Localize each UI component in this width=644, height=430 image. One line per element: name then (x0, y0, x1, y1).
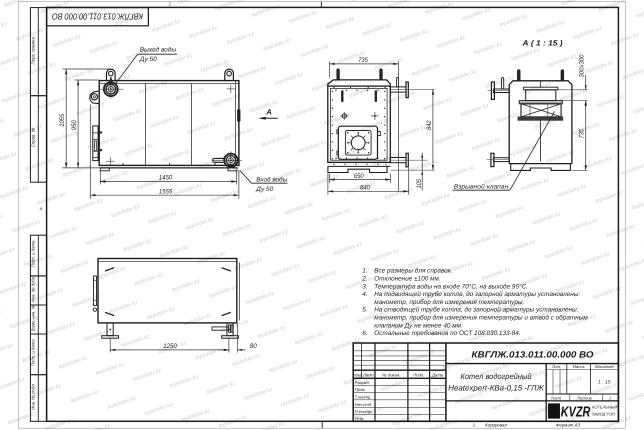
svg-text:Ду 50: Ду 50 (139, 56, 157, 63)
svg-text:Справ. №: Справ. № (31, 127, 36, 147)
svg-text:2: 2 (169, 2, 172, 7)
svg-text:А: А (265, 107, 271, 116)
svg-text:5.: 5. (362, 307, 367, 314)
svg-text:6.: 6. (362, 330, 367, 337)
svg-text:840: 840 (360, 185, 370, 192)
svg-text:ЗАВОД РЭП: ЗАВОД РЭП (592, 411, 615, 416)
svg-text:Температура воды на входе 70°С: Температура воды на входе 70°С, на выход… (374, 283, 528, 290)
svg-text:Взам. инв. №: Взам. инв. № (31, 304, 36, 331)
svg-text:1.: 1. (362, 268, 367, 275)
svg-text:Лит.: Лит. (551, 364, 561, 369)
svg-text:Разраб.: Разраб. (355, 380, 370, 385)
svg-text:735: 735 (358, 57, 368, 64)
svg-text:Выход воды: Выход воды (140, 47, 177, 54)
svg-text:Изм.: Изм. (353, 373, 362, 378)
svg-text:650: 650 (354, 173, 364, 180)
svg-text:Перв. примен.: Перв. примен. (31, 36, 36, 65)
svg-text:1055: 1055 (59, 114, 66, 127)
svg-text:Инв. № дубл.: Инв. № дубл. (31, 276, 36, 302)
svg-text:Взрывной клапан: Взрывной клапан (454, 183, 509, 190)
svg-text:№ докум.: № докум. (382, 373, 400, 378)
svg-text:манометр, прибор для измерения: манометр, прибор для измерения температу… (374, 299, 524, 306)
svg-text:Нач.отд.: Нач.отд. (355, 402, 373, 407)
svg-text:3.: 3. (362, 283, 367, 290)
svg-text:А: А (39, 206, 43, 211)
svg-text:А ( 1 : 15 ): А ( 1 : 15 ) (521, 39, 563, 48)
svg-text:Листов: Листов (576, 395, 592, 400)
svg-text:Копировал: Копировал (485, 422, 507, 427)
svg-text:КВГЛЖ.013.011.00.000 ВО: КВГЛЖ.013.011.00.000 ВО (52, 12, 143, 22)
svg-text:Котел водогрейный: Котел водогрейный (461, 372, 533, 381)
svg-text:1450: 1450 (159, 175, 173, 182)
svg-text:Лист: Лист (362, 373, 374, 378)
svg-text:4.: 4. (362, 291, 367, 298)
svg-text:Н.контр.: Н.контр. (355, 409, 373, 414)
svg-text:950: 950 (71, 120, 78, 130)
svg-text:Утв.: Утв. (355, 416, 365, 421)
svg-text:клапаном Ду не менее 40 мм.: клапаном Ду не менее 40 мм. (374, 322, 463, 329)
svg-text:Все размеры для справок.: Все размеры для справок. (374, 268, 452, 275)
svg-text:Формат А3: Формат А3 (556, 422, 581, 427)
svg-text:1 : 15: 1 : 15 (598, 380, 611, 386)
svg-text:манометр, прибор для измерения: манометр, прибор для измерения температу… (374, 315, 588, 322)
svg-text:80: 80 (250, 343, 257, 350)
svg-text:2.: 2. (361, 276, 367, 283)
svg-text:Heatexpert-КВа-0,15 -ГЛЖ: Heatexpert-КВа-0,15 -ГЛЖ (448, 384, 544, 393)
svg-text:Подп. и дата: Подп. и дата (31, 339, 36, 367)
svg-text:КОТЕЛЬНЫЙ: КОТЕЛЬНЫЙ (592, 404, 617, 409)
svg-text:Инв. № подл.: Инв. № подл. (31, 383, 36, 410)
svg-text:1: 1 (609, 395, 611, 400)
svg-text:Остальные требования по ОСТ 10: Остальные требования по ОСТ 108.030.133-… (374, 330, 520, 337)
svg-text:Подп. и дата: Подп. и дата (31, 240, 36, 268)
svg-text:Т.контр.: Т.контр. (355, 395, 372, 400)
svg-text:Масса: Масса (573, 364, 586, 369)
svg-text:1555: 1555 (159, 188, 173, 195)
svg-text:Пров.: Пров. (355, 387, 366, 392)
svg-text:Подп.: Подп. (413, 373, 424, 378)
svg-text:Ду 50: Ду 50 (255, 186, 273, 193)
svg-text:KVZR: KVZR (561, 405, 591, 421)
svg-text:842: 842 (426, 120, 433, 130)
svg-text:105: 105 (416, 179, 423, 189)
svg-text:Масштаб: Масштаб (595, 364, 614, 369)
svg-text:Вход воды: Вход воды (256, 177, 287, 184)
svg-text:На подводящей трубе котла, до: На подводящей трубе котла, до запорной а… (374, 291, 580, 298)
svg-text:На отводящей трубе котла, до з: На отводящей трубе котла, до запорной ар… (374, 307, 579, 314)
svg-text:Лист: Лист (550, 395, 562, 400)
svg-text:300х300: 300х300 (579, 54, 586, 78)
svg-text:Дата: Дата (431, 373, 444, 378)
svg-text:Отклонение ±100 мм.: Отклонение ±100 мм. (374, 276, 440, 283)
svg-text:1250: 1250 (163, 343, 177, 350)
svg-text:КВГЛЖ.013.011.00.000 ВО: КВГЛЖ.013.011.00.000 ВО (472, 350, 594, 360)
svg-text:735: 735 (579, 129, 586, 139)
